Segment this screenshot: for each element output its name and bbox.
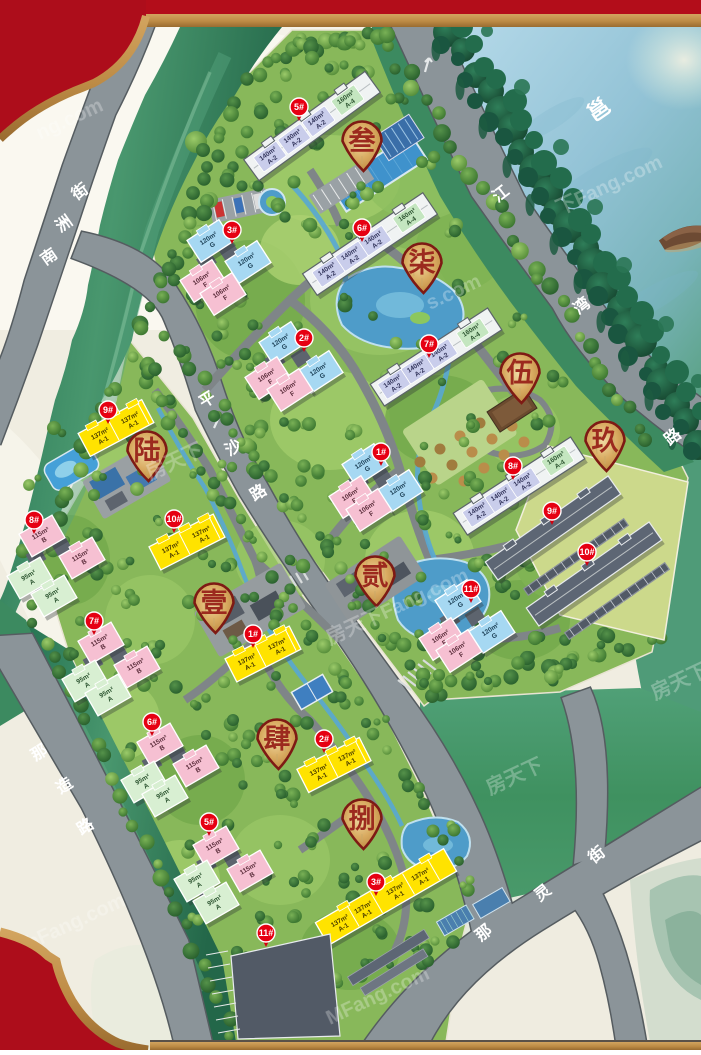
svg-text:1#: 1# [376,447,386,457]
svg-text:肆: 肆 [264,724,291,754]
svg-text:捌: 捌 [349,803,376,834]
svg-text:6#: 6# [357,223,367,233]
svg-text:叁: 叁 [349,125,377,156]
svg-text:柒: 柒 [409,248,436,278]
svg-text:7#: 7# [424,339,434,349]
svg-text:9#: 9# [103,405,113,415]
svg-text:7#: 7# [89,616,99,626]
svg-text:5#: 5# [294,102,304,112]
svg-text:6#: 6# [147,717,157,727]
svg-text:8#: 8# [508,461,518,471]
svg-text:9#: 9# [547,506,557,516]
svg-text:贰: 贰 [362,561,389,591]
svg-text:10#: 10# [579,547,594,557]
svg-text:3#: 3# [371,877,381,887]
svg-text:8#: 8# [29,515,39,525]
svg-text:2#: 2# [319,734,329,744]
svg-text:玖: 玖 [592,426,619,456]
svg-text:壹: 壹 [201,588,228,618]
svg-text:2#: 2# [299,333,309,343]
svg-text:10#: 10# [166,514,181,524]
svg-text:3#: 3# [227,225,237,235]
svg-text:11#: 11# [259,928,274,938]
svg-text:5#: 5# [204,817,214,827]
svg-text:1#: 1# [248,629,258,639]
svg-text:伍: 伍 [507,358,534,388]
